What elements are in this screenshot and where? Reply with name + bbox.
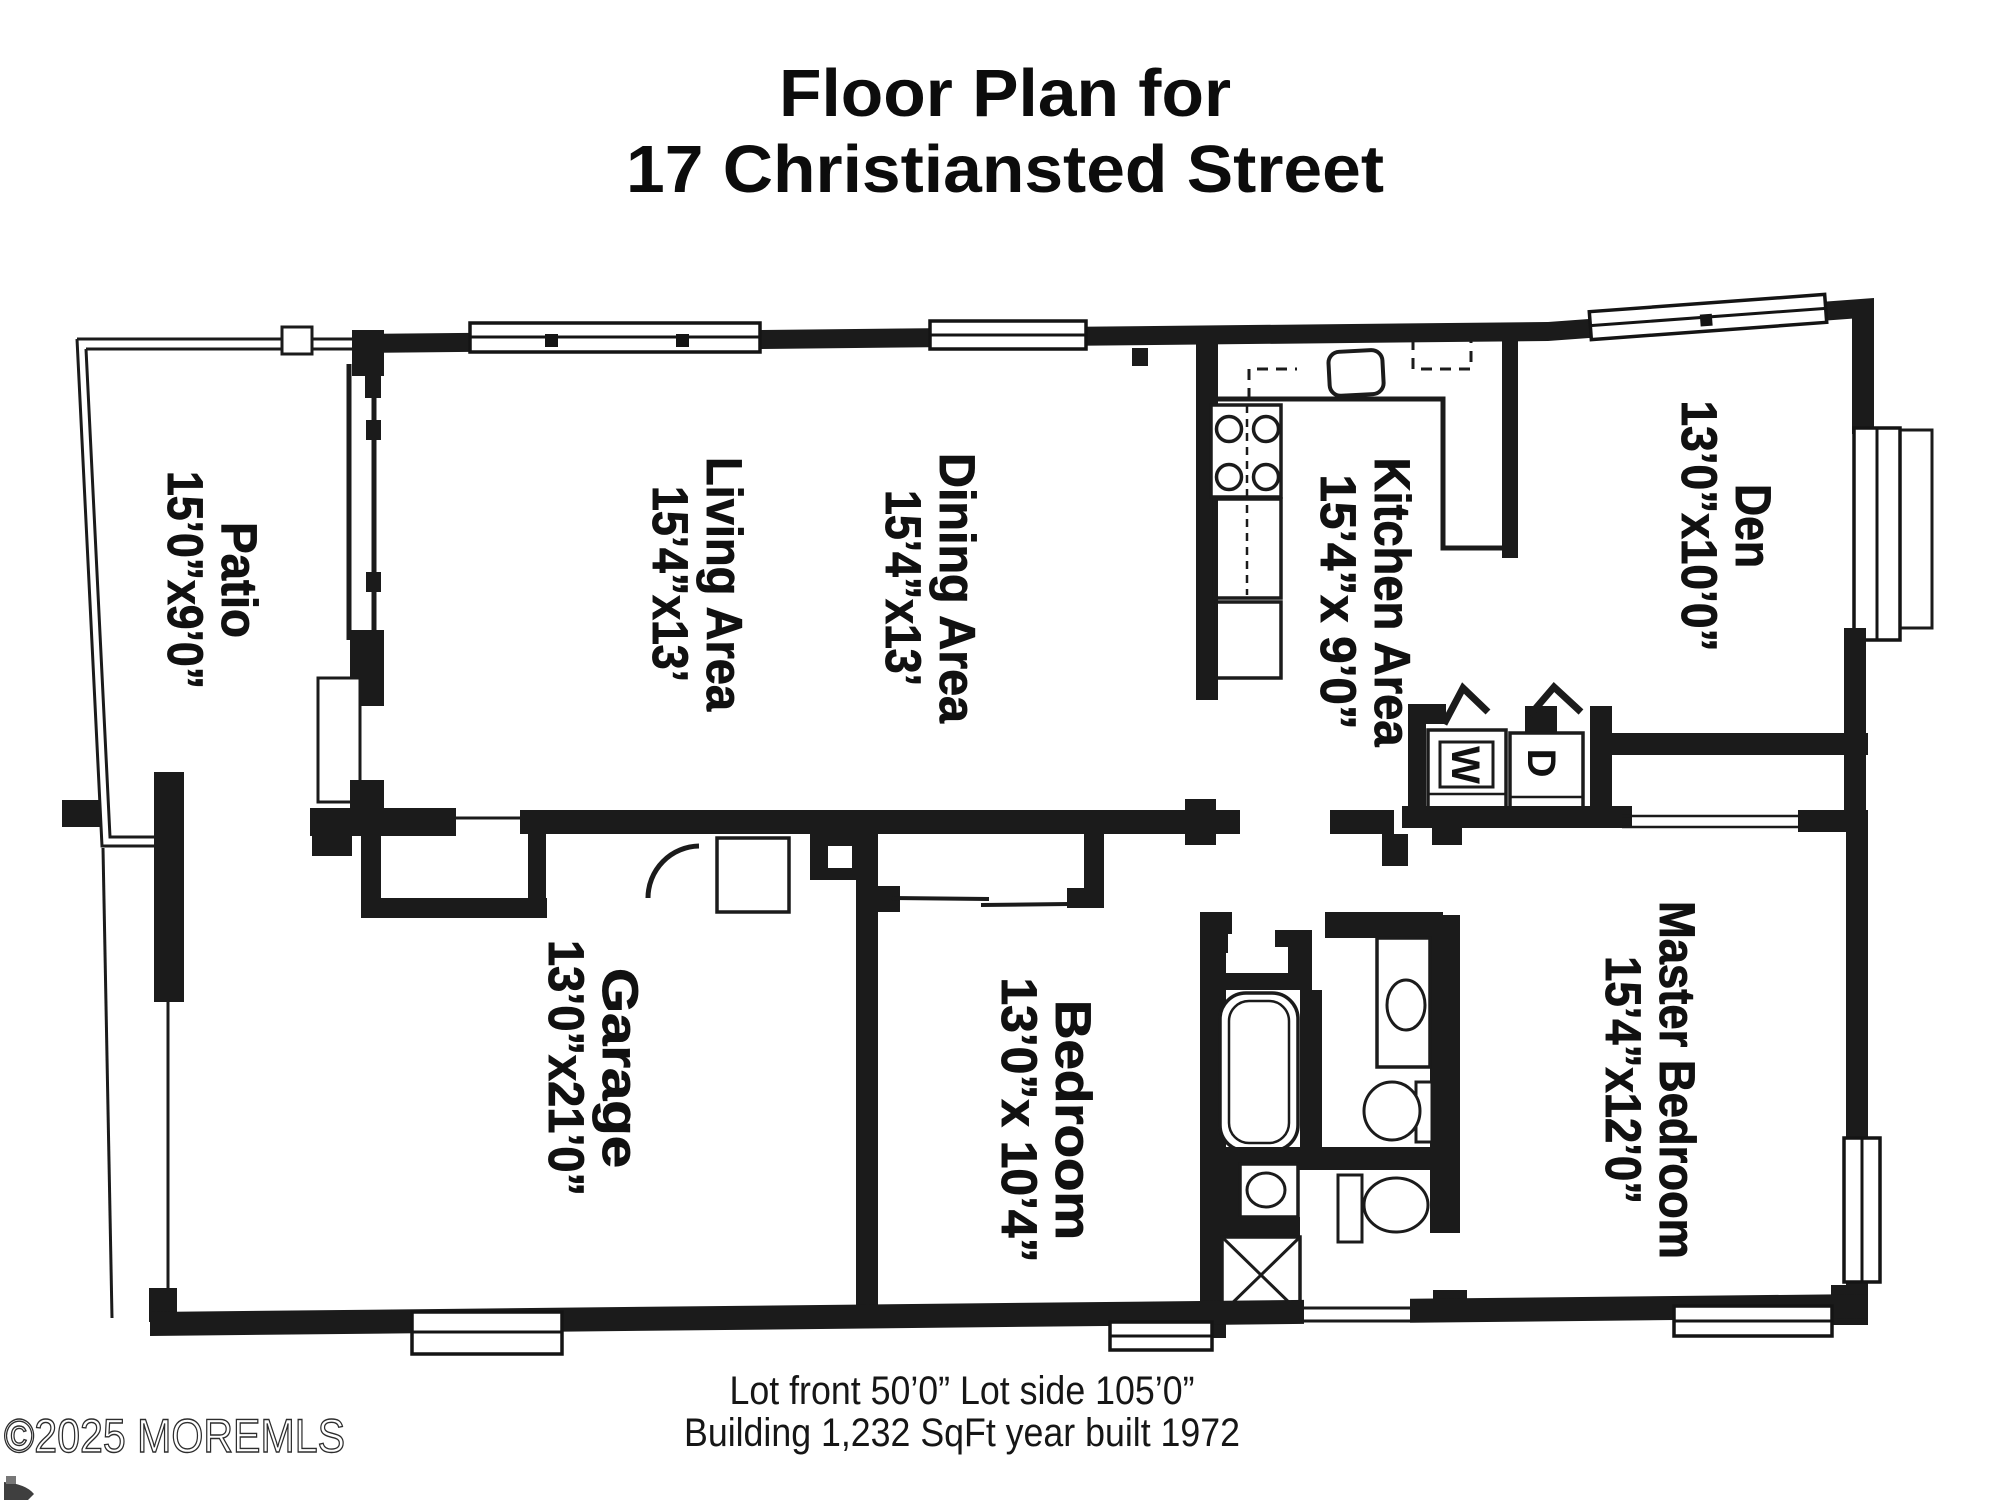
svg-text:Patio: Patio [211,522,267,638]
svg-text:13’0”x 10’4”: 13’0”x 10’4” [991,978,1047,1263]
svg-text:©2025 MOREMLS: ©2025 MOREMLS [4,1409,345,1462]
svg-text:13’0”x10’0”: 13’0”x10’0” [1671,401,1727,652]
svg-text:17 Christiansted Street: 17 Christiansted Street [626,132,1384,207]
svg-text:15’4”x13’: 15’4”x13’ [642,486,698,682]
svg-text:Living Area: Living Area [696,457,752,712]
svg-text:15’4”x13’: 15’4”x13’ [875,490,931,686]
svg-text:15’4”x12’0”: 15’4”x12’0” [1595,956,1651,1204]
svg-text:D: D [1519,749,1563,778]
svg-text:Floor Plan for: Floor Plan for [779,56,1231,131]
svg-text:Lot front 50’0” Lot side 105’0: Lot front 50’0” Lot side 105’0” [730,1369,1195,1413]
svg-text:15’0”x9’0”: 15’0”x9’0” [157,471,213,689]
svg-text:Garage: Garage [592,968,648,1168]
svg-text:Bedroom: Bedroom [1045,1000,1101,1240]
svg-text:13’0”x21’0”: 13’0”x21’0” [538,940,594,1196]
svg-text:W: W [1443,746,1487,784]
svg-text:Dining Area: Dining Area [929,453,985,724]
svg-text:Den: Den [1725,484,1781,568]
svg-text:Building 1,232 SqFt year built: Building 1,232 SqFt year built 1972 [684,1411,1240,1455]
svg-text:Master Bedroom: Master Bedroom [1649,901,1705,1259]
svg-text:15’4”x 9’0”: 15’4”x 9’0” [1310,475,1366,730]
